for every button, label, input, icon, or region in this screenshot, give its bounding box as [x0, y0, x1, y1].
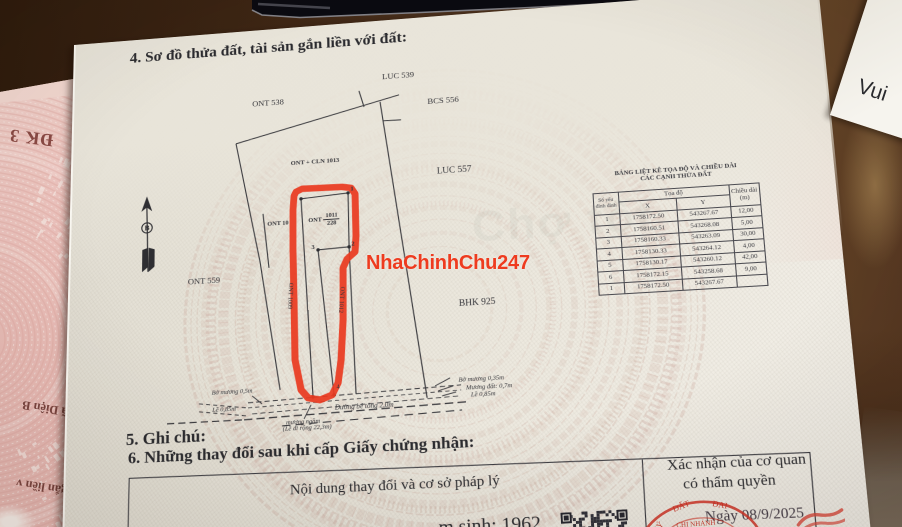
svg-text:ĐẤT: ĐẤT [671, 498, 692, 514]
svg-text:ĐAI: ĐAI [712, 498, 729, 511]
svg-text:CHI NHÁNH: CHI NHÁNH [676, 519, 716, 527]
svg-text:B: B [144, 225, 149, 233]
